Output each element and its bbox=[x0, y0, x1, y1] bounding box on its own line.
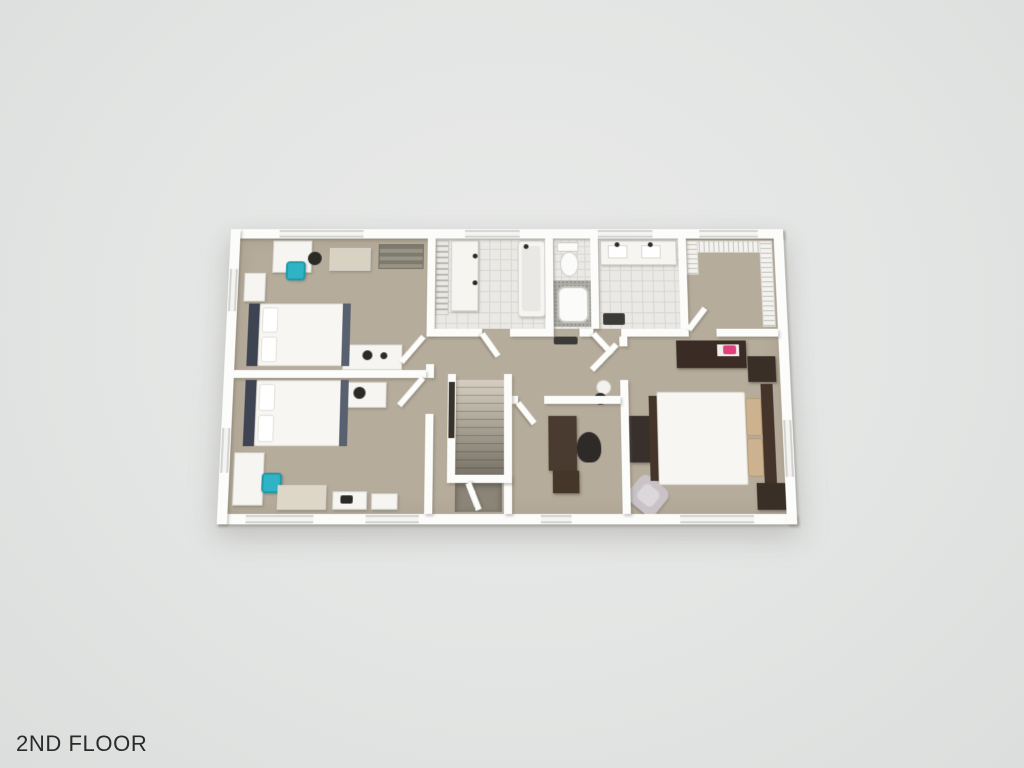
laptop bbox=[340, 495, 352, 503]
side-table bbox=[371, 493, 398, 510]
floor-label: 2ND FLOOR bbox=[16, 731, 147, 757]
pink-decor bbox=[723, 345, 736, 354]
sink bbox=[641, 245, 661, 258]
floor-plan-3d bbox=[217, 229, 798, 524]
pillow bbox=[262, 307, 279, 332]
stair-handrail bbox=[448, 382, 455, 438]
wall bbox=[427, 329, 483, 337]
wall bbox=[427, 239, 436, 335]
office-desk bbox=[548, 416, 577, 471]
pillow bbox=[260, 337, 277, 363]
wall-bedroom-divider bbox=[234, 370, 426, 378]
shower-head bbox=[524, 244, 529, 249]
wall bbox=[510, 329, 554, 337]
toilet-tank bbox=[557, 242, 579, 251]
wall bbox=[621, 329, 681, 337]
pillow bbox=[258, 384, 275, 411]
window bbox=[680, 515, 754, 523]
window bbox=[699, 230, 758, 238]
nightstand bbox=[243, 273, 266, 302]
wall bbox=[545, 239, 554, 329]
window bbox=[541, 515, 572, 523]
floor-plan-page: { "floor_label": "2ND FLOOR", "palette":… bbox=[0, 0, 1024, 768]
staircase bbox=[455, 380, 504, 475]
nightstand bbox=[757, 483, 787, 510]
wall-stair-south bbox=[447, 475, 512, 483]
wall bbox=[590, 239, 599, 329]
wall bbox=[716, 329, 778, 337]
beige-cabinet bbox=[329, 248, 371, 271]
wall bbox=[424, 414, 433, 514]
bath-mat bbox=[603, 313, 625, 325]
faucet bbox=[473, 280, 478, 285]
vanity bbox=[451, 240, 479, 311]
window bbox=[365, 515, 418, 523]
pillow bbox=[257, 415, 274, 442]
tan-pillow bbox=[747, 438, 765, 477]
wall bbox=[619, 337, 627, 347]
desk bbox=[232, 452, 265, 505]
desk-return bbox=[553, 471, 580, 494]
rustic-shelf bbox=[378, 244, 424, 269]
office-chair bbox=[577, 432, 602, 462]
tan-pillow bbox=[745, 398, 763, 436]
console-table bbox=[342, 344, 402, 370]
window bbox=[279, 230, 363, 238]
wall bbox=[426, 364, 434, 378]
window bbox=[245, 515, 313, 523]
master-bed-mattress bbox=[656, 392, 748, 485]
teal-desk-chair bbox=[286, 261, 306, 280]
wall-office-north bbox=[544, 396, 620, 404]
window bbox=[465, 230, 520, 238]
sink bbox=[608, 245, 628, 258]
storage-unit bbox=[277, 485, 327, 510]
faucet bbox=[473, 254, 478, 259]
faucet bbox=[648, 242, 653, 247]
toilet-bowl bbox=[560, 252, 579, 277]
nightstand bbox=[747, 356, 776, 382]
bed-footboard bbox=[341, 304, 351, 367]
door-mat bbox=[554, 337, 578, 345]
window bbox=[598, 230, 653, 238]
wall-office-west bbox=[504, 374, 512, 514]
faucet bbox=[615, 242, 620, 247]
wardrobe bbox=[629, 416, 650, 463]
linen-shelves bbox=[435, 240, 450, 315]
bathtub bbox=[557, 286, 589, 323]
wall bbox=[681, 329, 689, 337]
shower-pan bbox=[522, 246, 541, 311]
wire-shelf bbox=[686, 240, 699, 274]
